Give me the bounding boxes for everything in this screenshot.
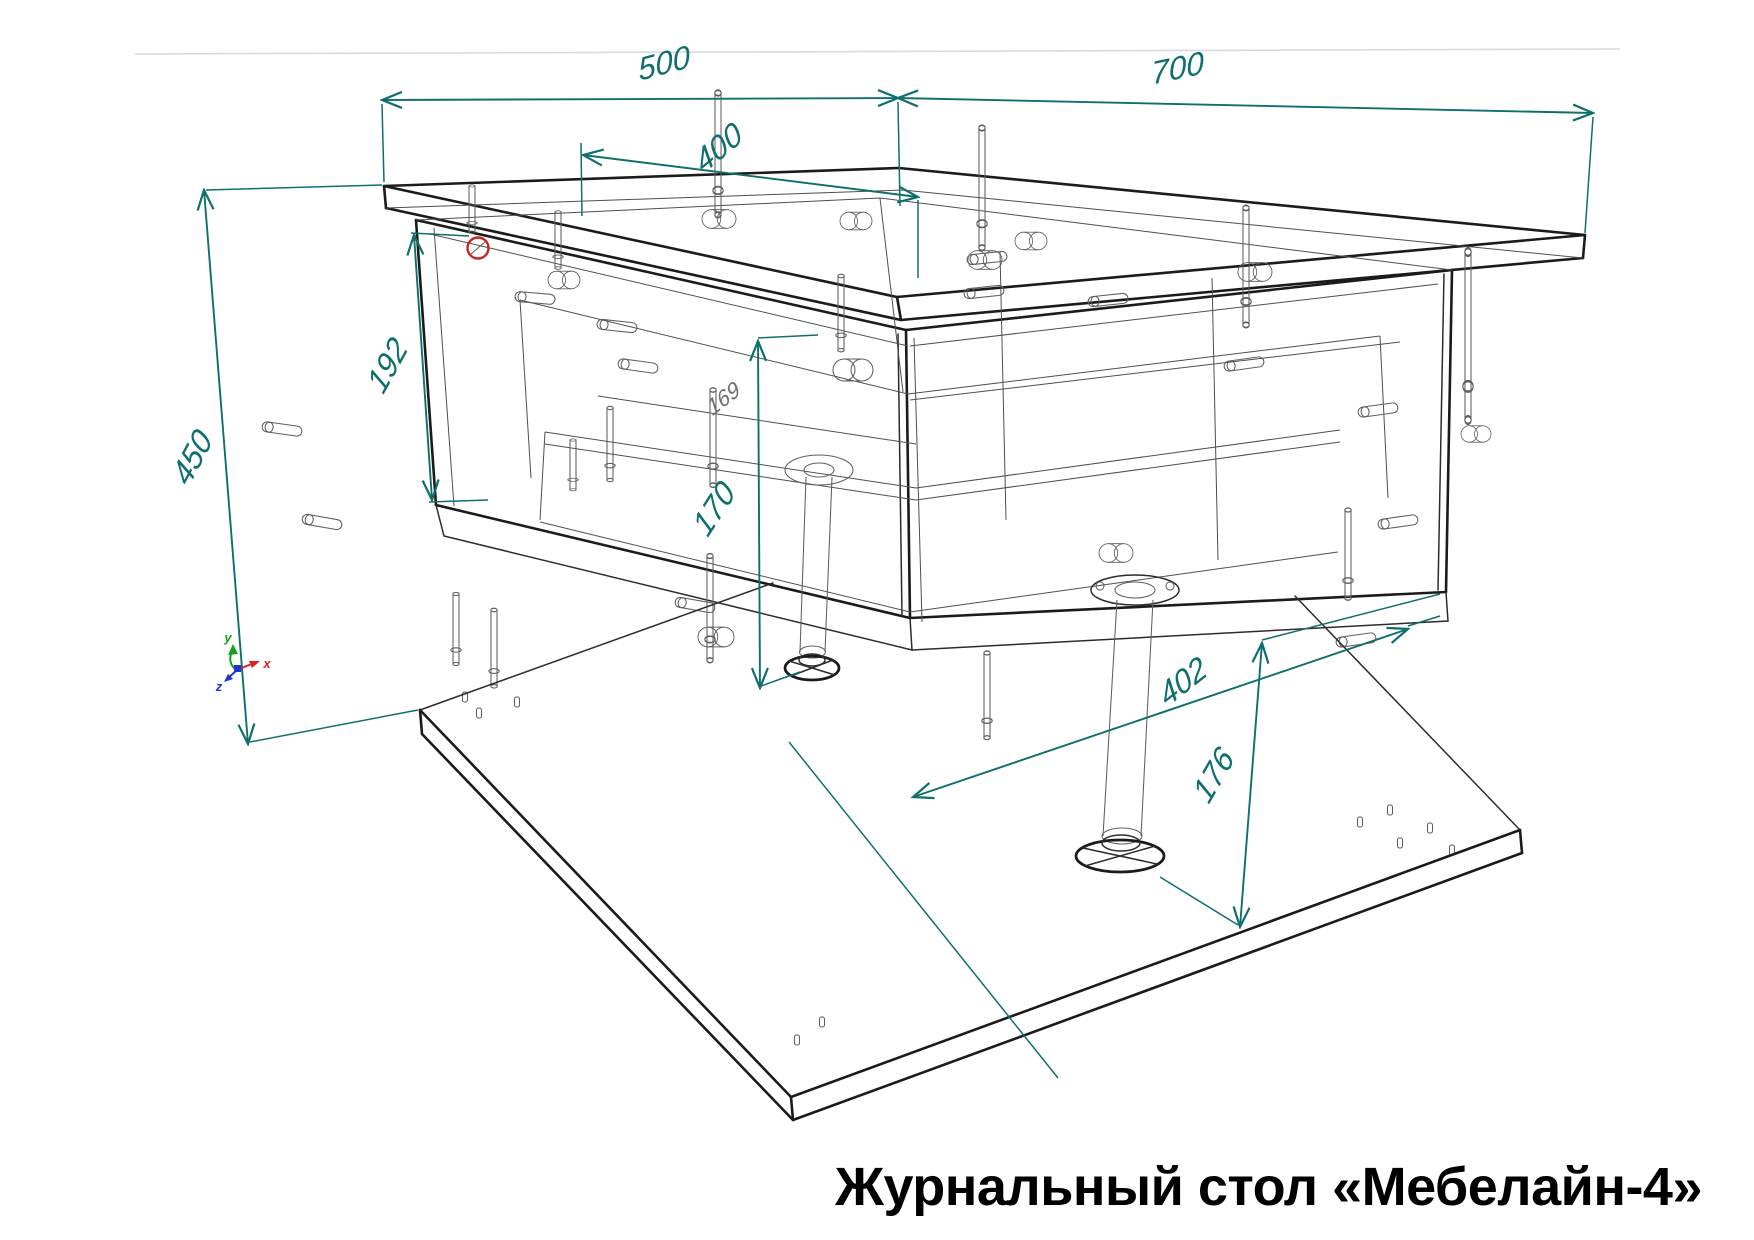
table-assembly-drawing: 500 700 400 450 192 170 402 17 xyxy=(0,0,1754,1240)
bottom-shelf xyxy=(420,583,1522,1120)
dimension-192: 192 xyxy=(360,233,488,502)
dimension-176: 176 xyxy=(1160,594,1440,927)
dimension-450: 450 xyxy=(165,185,418,744)
drawing-title: Журнальный стол «Мебелайн-4» xyxy=(835,1156,1702,1218)
dimension-402: 402 xyxy=(789,616,1440,1078)
dim-label-192: 192 xyxy=(360,330,414,400)
dim-label-400: 400 xyxy=(689,114,748,180)
dimension-400: 400 xyxy=(581,114,918,278)
drawing-sheet: 500 700 400 450 192 170 402 17 xyxy=(0,0,1754,1240)
dim-label-169: 169 xyxy=(703,376,744,421)
fastener-hardware xyxy=(261,90,1491,1045)
dim-label-170: 170 xyxy=(686,474,742,544)
y-axis-arrowhead xyxy=(228,644,238,655)
dim-label-500: 500 xyxy=(637,38,692,88)
sheet-top-rule xyxy=(135,49,1620,54)
dim-label-402: 402 xyxy=(1153,649,1212,714)
dimension-note-169: 169 xyxy=(703,376,744,421)
detail-marker xyxy=(468,238,489,259)
dimension-170: 170 xyxy=(686,335,818,688)
dim-label-176: 176 xyxy=(1186,740,1241,810)
y-axis-label: y xyxy=(223,630,232,645)
dimension-500: 500 xyxy=(382,38,900,206)
z-axis-label: z xyxy=(215,679,223,694)
x-axis-label: x xyxy=(262,656,271,671)
carcass-box xyxy=(416,198,1452,650)
x-axis-arrowhead xyxy=(249,661,260,668)
dim-label-450: 450 xyxy=(165,422,219,492)
